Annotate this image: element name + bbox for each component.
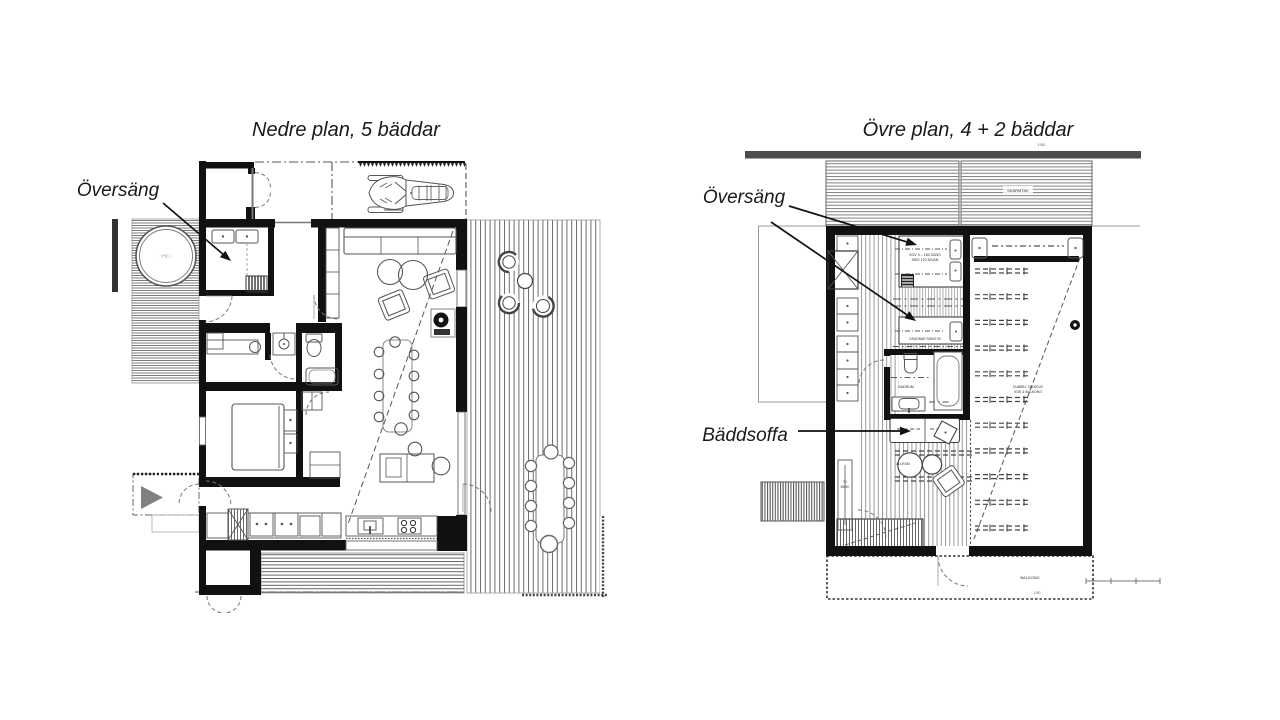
- svg-text:BÄNK: BÄNK: [841, 485, 851, 489]
- svg-text:SOV 4 – 180 SÄNG: SOV 4 – 180 SÄNG: [909, 253, 941, 257]
- svg-text:~HC~: ~HC~: [159, 254, 172, 260]
- svg-text:Översäng: Översäng: [77, 180, 160, 201]
- svg-text:BADRUM: BADRUM: [898, 385, 914, 389]
- svg-text:1:50: 1:50: [1034, 591, 1041, 595]
- svg-text:DUBBEL TAKHÖJD: DUBBEL TAKHÖJD: [1013, 385, 1043, 389]
- svg-text:1:50: 1:50: [1037, 142, 1046, 147]
- svg-text:Översäng: Översäng: [703, 187, 786, 208]
- svg-text:Bäddsoffa: Bäddsoffa: [702, 425, 788, 446]
- svg-text:KÖK & BALKONG: KÖK & BALKONG: [1014, 390, 1042, 394]
- svg-text:MED 120 DIVAN: MED 120 DIVAN: [912, 258, 939, 262]
- svg-text:SKÄRMTAK: SKÄRMTAK: [1007, 188, 1029, 193]
- svg-text:BALKONG: BALKONG: [1020, 575, 1039, 580]
- svg-text:ALLRUM: ALLRUM: [896, 462, 910, 466]
- svg-text:VÄNDBAR SÄNG 90: VÄNDBAR SÄNG 90: [909, 337, 941, 341]
- svg-text:Övre plan, 4 + 2 bäddar: Övre plan, 4 + 2 bäddar: [863, 119, 1075, 141]
- svg-text:Nedre plan, 5 bäddar: Nedre plan, 5 bäddar: [252, 119, 441, 141]
